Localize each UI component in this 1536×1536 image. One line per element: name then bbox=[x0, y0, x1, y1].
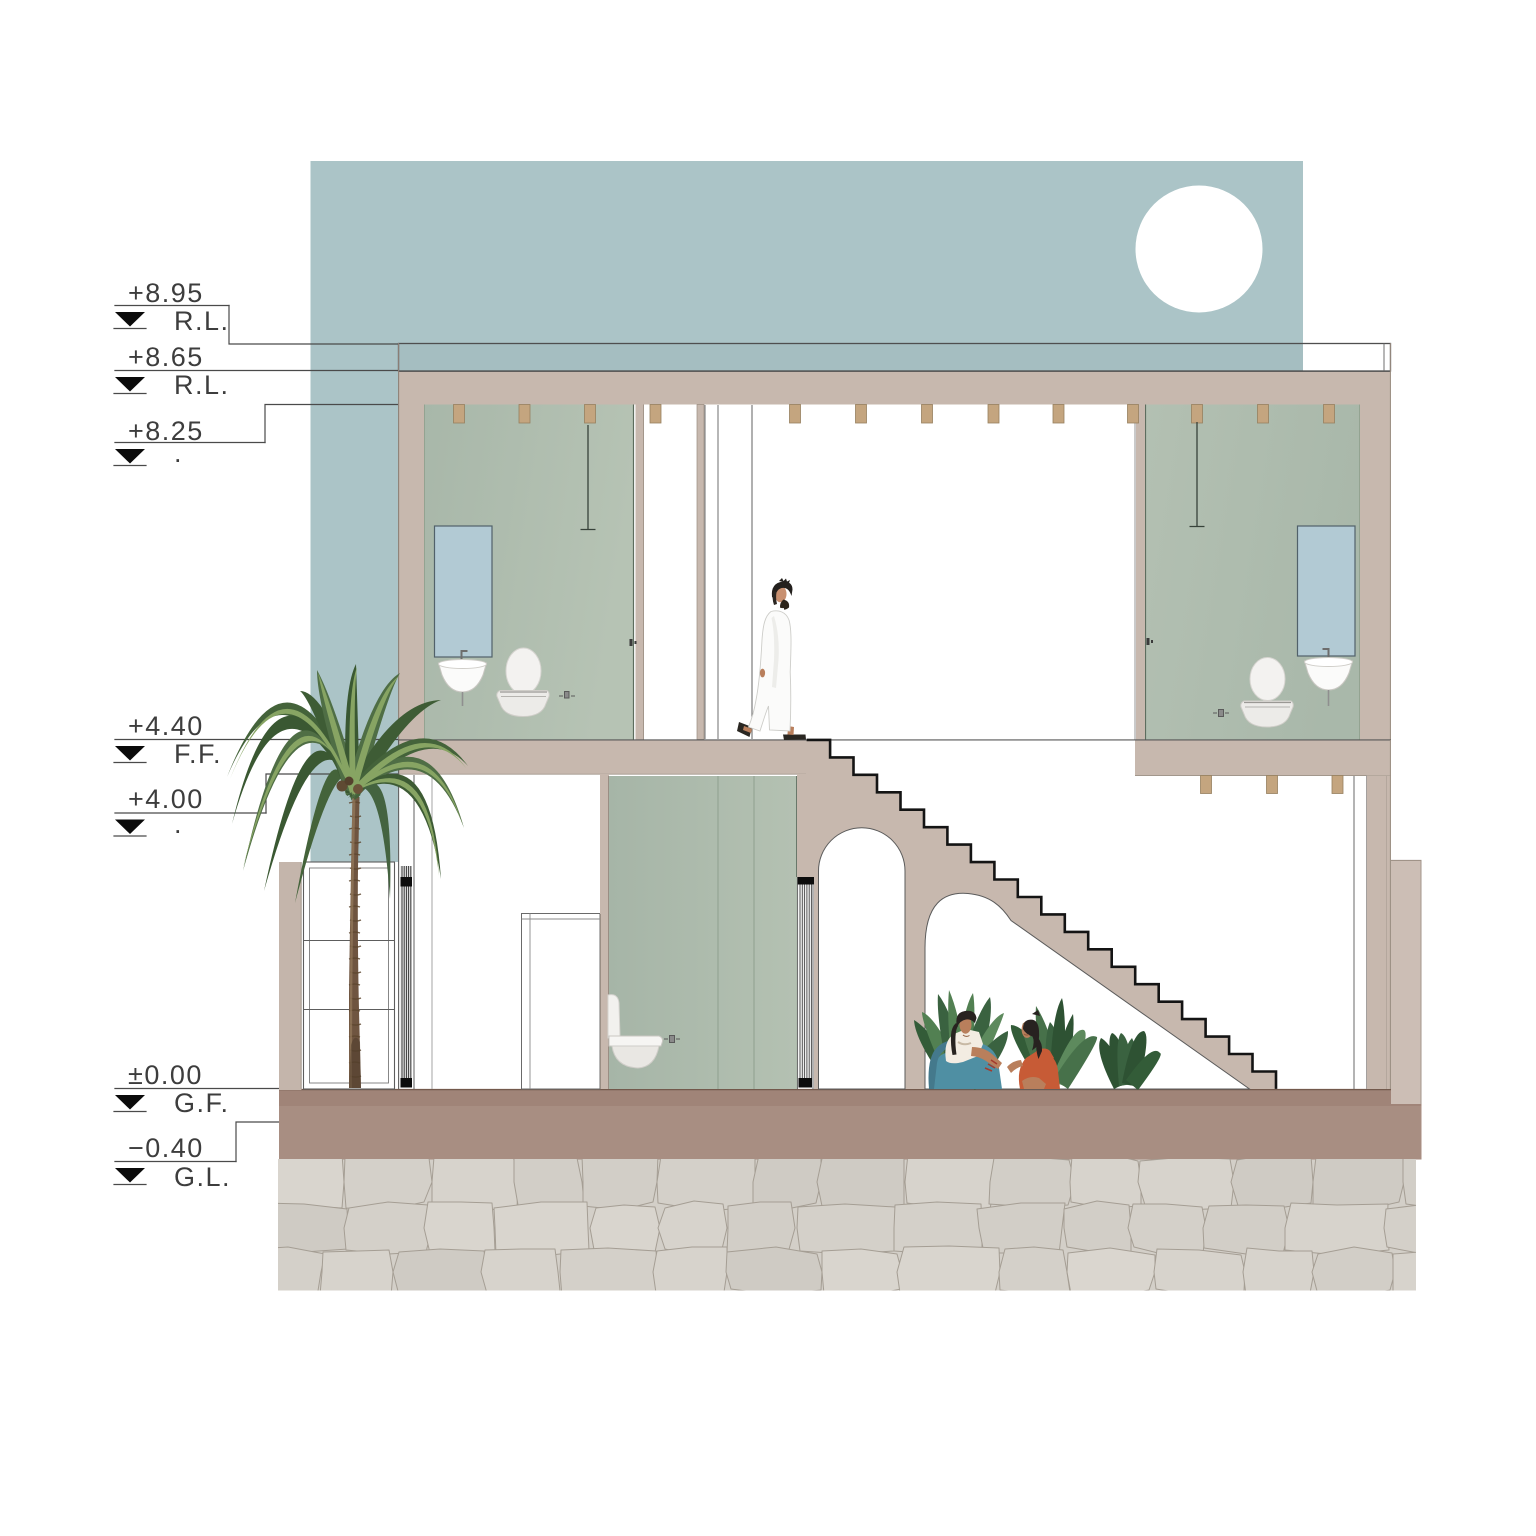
svg-text:−0.40: −0.40 bbox=[128, 1133, 204, 1163]
svg-text:R.L.: R.L. bbox=[174, 306, 230, 336]
svg-text:+8.25: +8.25 bbox=[128, 416, 204, 446]
svg-text:+8.65: +8.65 bbox=[128, 342, 204, 372]
svg-text:+4.00: +4.00 bbox=[128, 784, 204, 814]
svg-text:G.L.: G.L. bbox=[174, 1162, 231, 1192]
svg-text:G.F.: G.F. bbox=[174, 1088, 230, 1118]
svg-text:.: . bbox=[174, 438, 183, 468]
svg-text:+4.40: +4.40 bbox=[128, 711, 204, 741]
svg-text:F.F.: F.F. bbox=[174, 739, 222, 769]
svg-text:.: . bbox=[174, 809, 183, 839]
svg-text:+8.95: +8.95 bbox=[128, 278, 204, 308]
svg-text:R.L.: R.L. bbox=[174, 370, 230, 400]
svg-text:±0.00: ±0.00 bbox=[128, 1060, 203, 1090]
